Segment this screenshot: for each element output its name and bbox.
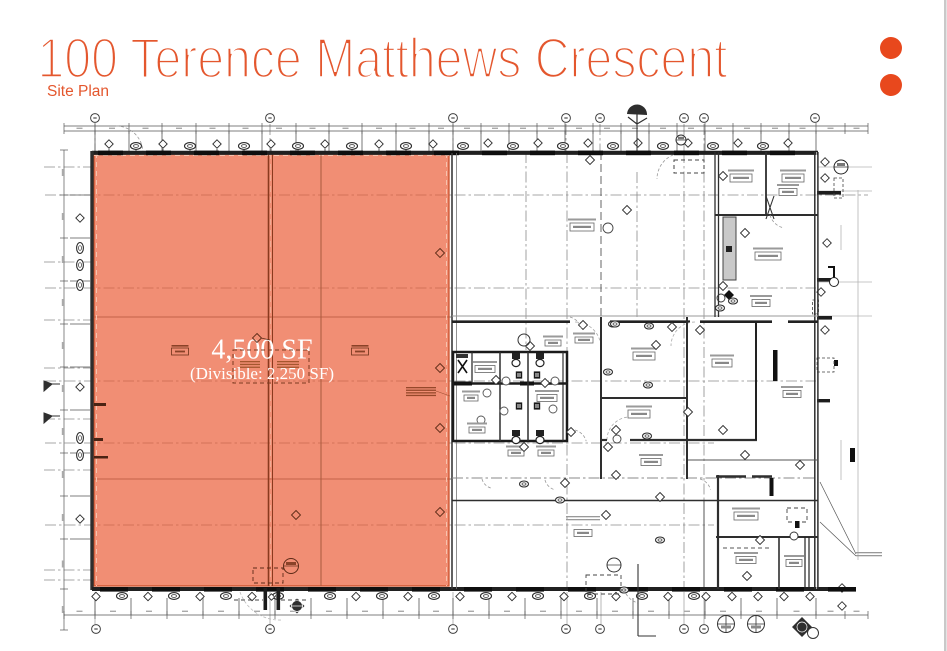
svg-text:Site Plan: Site Plan — [47, 83, 109, 100]
svg-text:(Divisible: 2,250 SF): (Divisible: 2,250 SF) — [190, 364, 334, 383]
svg-text:100 Terence Matthews Crescent: 100 Terence Matthews Crescent — [38, 27, 728, 91]
